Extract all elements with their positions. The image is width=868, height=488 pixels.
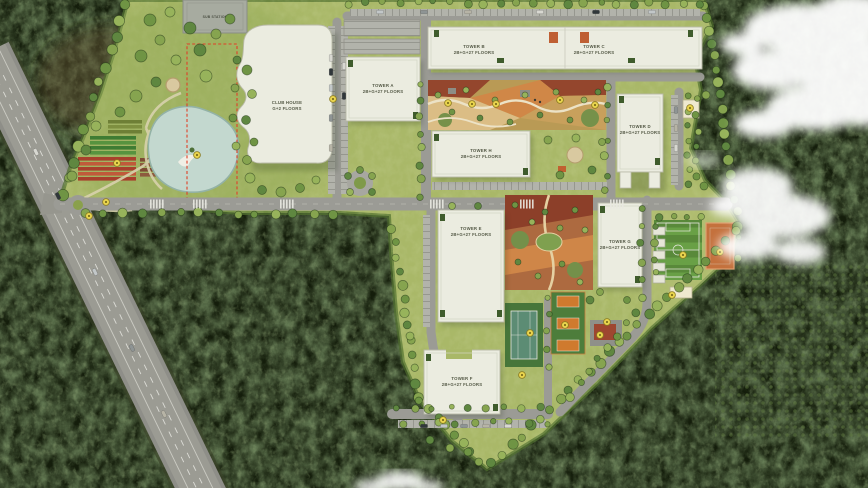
- plantation-rows: [715, 265, 868, 440]
- tower-a-floors: 2B+G+27 FLOORS: [363, 89, 404, 94]
- tower-d-name: TOWER D: [629, 124, 651, 129]
- tower-c-floors: 2B+G+27 FLOORS: [574, 50, 615, 55]
- tower-h: TOWER H 2B+G+27 FLOORS: [432, 131, 530, 177]
- tower-h-floors: 2B+G+27 FLOORS: [461, 154, 502, 159]
- tower-e: TOWER E 2B+G+27 FLOORS: [438, 210, 504, 322]
- master-plan-svg: SUB STATION CLUB HOUSE G+2 FLOORS TOWER …: [0, 0, 868, 488]
- tower-d-floors: 2B+G+27 FLOORS: [620, 130, 661, 135]
- tower-g-name: TOWER G: [609, 239, 631, 244]
- tower-g-floors: 2B+G+27 FLOORS: [600, 245, 641, 250]
- central-courtyard-south: [505, 195, 593, 290]
- lake: [148, 107, 238, 193]
- olive-beds: [108, 120, 142, 134]
- club-house-floors: G+2 FLOORS: [272, 106, 301, 111]
- substation-label: SUB STATION: [203, 15, 228, 19]
- tower-b-name: TOWER B: [463, 44, 485, 49]
- tower-g: TOWER G 2B+G+27 FLOORS: [598, 203, 642, 287]
- club-house-name: CLUB HOUSE: [272, 100, 302, 105]
- tower-b-c-block: TOWER B 2B+G+27 FLOORS TOWER C 2B+G+27 F…: [428, 27, 702, 69]
- tower-c-name: TOWER C: [583, 44, 605, 49]
- tower-h-name: TOWER H: [470, 148, 492, 153]
- tower-e-name: TOWER E: [460, 226, 481, 231]
- central-courtyard-north: [428, 80, 606, 130]
- tower-f-floors: 2B+G+27 FLOORS: [442, 382, 483, 387]
- tower-a: TOWER A 2B+G+27 FLOORS: [346, 57, 420, 121]
- tennis-court: [505, 303, 543, 367]
- tower-f: TOWER F 2B+G+27 FLOORS: [424, 349, 500, 414]
- park-plaza-circle: [166, 78, 180, 92]
- red-beds: [78, 157, 136, 181]
- tower-f-name: TOWER F: [451, 376, 472, 381]
- master-plan-screenshot: SUB STATION CLUB HOUSE G+2 FLOORS TOWER …: [0, 0, 868, 488]
- tower-a-name: TOWER A: [372, 83, 393, 88]
- cloud-wisp: [685, 152, 721, 168]
- tower-b-floors: 2B+G+27 FLOORS: [454, 50, 495, 55]
- tower-e-floors: 2B+G+27 FLOORS: [451, 232, 492, 237]
